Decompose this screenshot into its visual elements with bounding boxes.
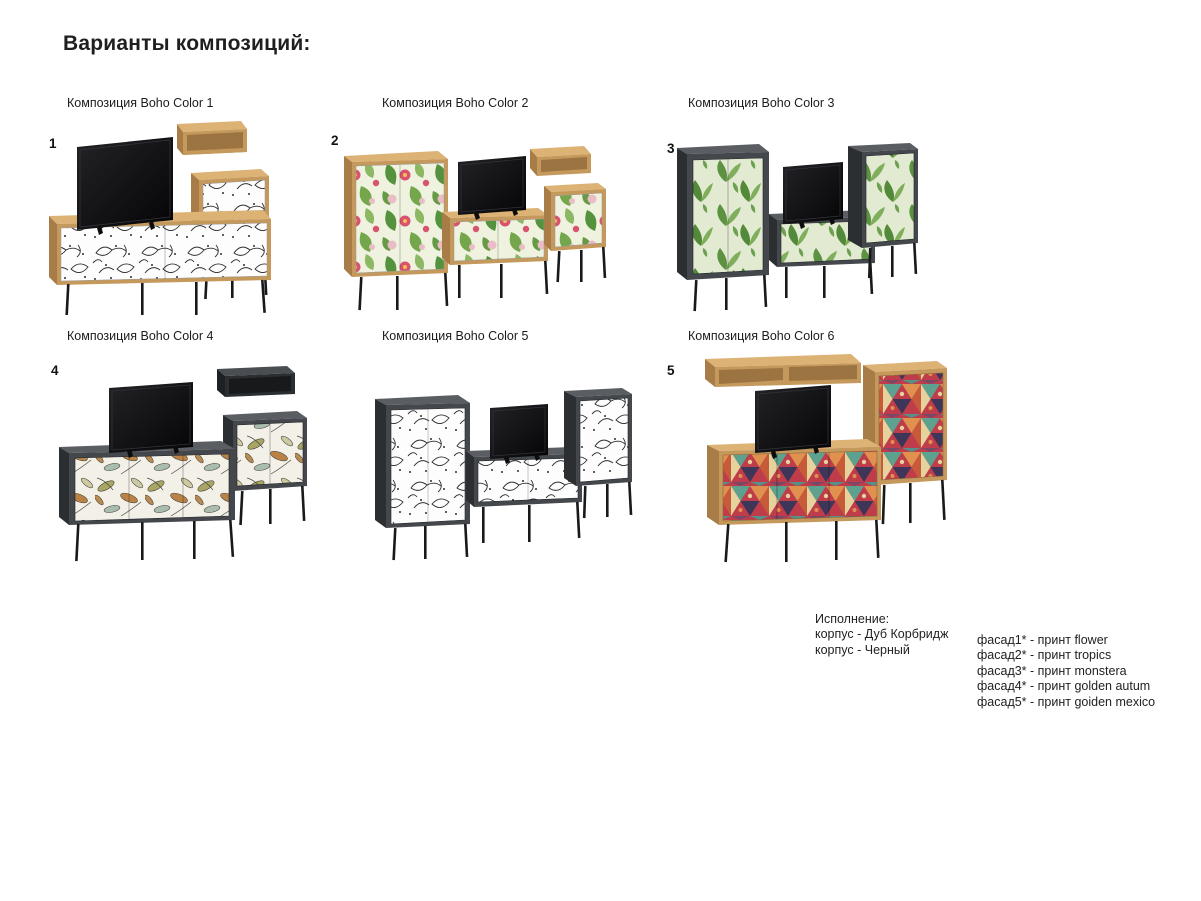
tv — [755, 385, 831, 459]
tall-cabinet-left — [677, 144, 769, 311]
composition-4-image — [45, 350, 345, 565]
composition-2-image — [330, 115, 620, 315]
composition-5-image — [360, 350, 650, 565]
legend-body-line-1: корпус - Дуб Корбридж — [815, 627, 948, 642]
page-title: Варианты композиций: — [63, 32, 311, 56]
legend-facade-line-3: фасад3* - принт monstera — [977, 664, 1155, 679]
composition-2-label: Композиция Boho Color 2 — [382, 96, 528, 110]
tv — [77, 137, 173, 235]
composition-6-image — [655, 350, 955, 565]
legend-body-line-2: корпус - Черный — [815, 643, 948, 658]
legend-heading: Исполнение: — [815, 612, 948, 627]
tv — [458, 156, 526, 220]
wall-shelf — [177, 121, 247, 155]
composition-3-image — [665, 115, 955, 315]
composition-1-image — [45, 115, 305, 315]
legend-facade-line-5: фасад5* - принт goiden mexico — [977, 695, 1155, 710]
tv — [783, 162, 843, 229]
tall-cabinet-left — [375, 395, 470, 560]
wall-shelf — [530, 146, 591, 176]
catalog-page: Варианты композиций: Композиция Boho Col… — [0, 0, 1201, 901]
tv — [490, 404, 548, 464]
tv-stand — [707, 439, 881, 562]
composition-6-label: Композиция Boho Color 6 — [688, 329, 834, 343]
tall-cabinet — [344, 151, 448, 310]
legend-facades: фасад1* - принт flower фасад2* - принт t… — [977, 633, 1155, 710]
wall-shelf-long — [705, 354, 861, 387]
composition-3-label: Композиция Boho Color 3 — [688, 96, 834, 110]
tv — [109, 382, 193, 458]
legend-facade-line-2: фасад2* - принт tropics — [977, 648, 1155, 663]
legend-finish: Исполнение: корпус - Дуб Корбридж корпус… — [815, 612, 948, 658]
tv-stand — [442, 208, 548, 298]
composition-1-label: Композиция Boho Color 1 — [67, 96, 213, 110]
legend-facade-line-4: фасад4* - принт golden autum — [977, 679, 1155, 694]
small-cabinet — [544, 183, 606, 282]
composition-4-label: Композиция Boho Color 4 — [67, 329, 213, 343]
wall-shelf — [217, 366, 295, 397]
small-cabinet — [223, 411, 307, 525]
tv-stand — [59, 441, 235, 561]
legend-facade-line-1: фасад1* - принт flower — [977, 633, 1155, 648]
composition-5-label: Композиция Boho Color 5 — [382, 329, 528, 343]
